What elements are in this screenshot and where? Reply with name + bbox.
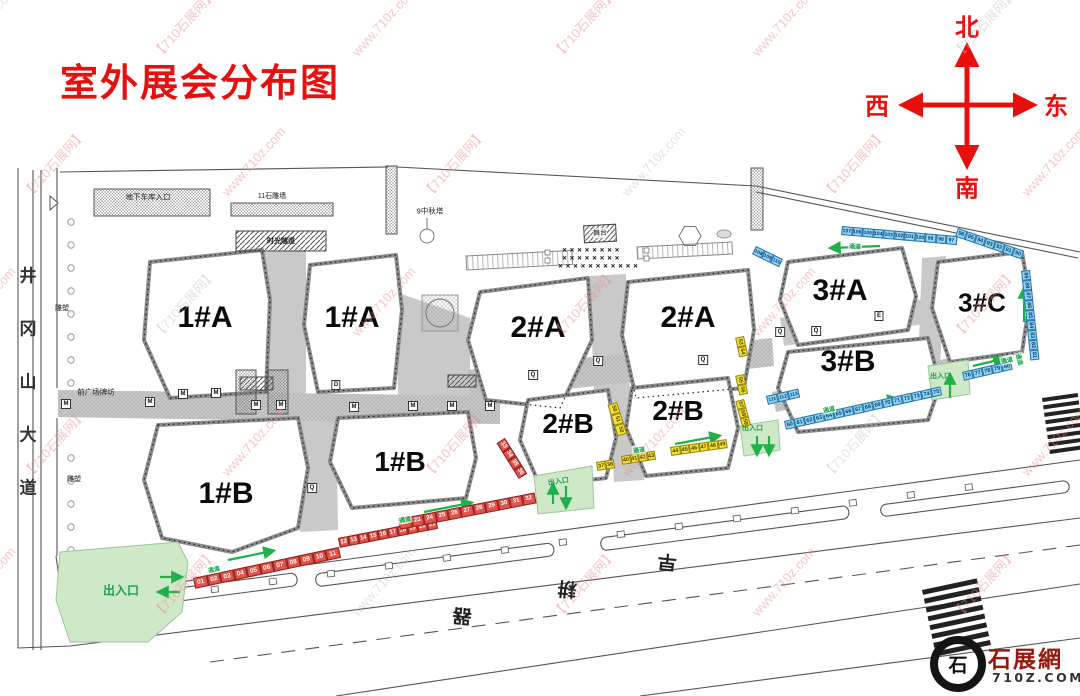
passage-label: 通道 [631,444,646,455]
building-label-b3a: 3#A [812,274,867,308]
walkway-marker-m: M [251,400,261,410]
logo-site-name: 石展網 [988,640,1063,674]
seat-mark: ✕ [570,247,575,254]
compass-cross [908,52,1028,160]
seat-mark: ✕ [615,247,620,254]
light-post [68,288,74,294]
seat-mark: ✕ [577,247,582,254]
parking-tick [675,523,683,530]
time-tunnel-label: 时光隧道 [267,236,295,246]
parking-tick [559,539,567,546]
plaza-square [422,295,458,331]
seat-mark: ✕ [585,247,590,254]
avenue-char: 道 [20,474,37,499]
building-label-b2b_w: 2#B [542,408,593,440]
stage-label: 舞台 [593,228,608,239]
light-post [68,219,74,225]
garage-entrance-label: 地下车库入口 [126,192,171,203]
zebra-stripe [1049,445,1080,454]
building-label-b2a_w: 2#A [510,311,565,345]
booth-43: 43 [646,451,656,461]
seat-mark: ✕ [611,263,616,270]
walkway-marker-q: Q [307,483,317,493]
light-post [68,380,74,386]
seat-mark: ✕ [600,255,605,262]
parking-tick [849,499,857,506]
seat-table [644,256,649,261]
avenue-char: 山 [20,368,37,393]
page-title: 室外展会分布图 [60,52,340,107]
parking-tick [269,578,277,585]
seat-mark: ✕ [581,263,586,270]
seat-mark: ✕ [592,255,597,262]
stone-wall-label: 11石雕墙 [258,191,286,201]
walkway-marker-q: Q [811,326,821,336]
tower-east [751,168,763,230]
parking-tick [733,515,741,522]
autumn-tower-marker [420,229,434,243]
seat-table [644,248,649,253]
avenue-char: 大 [20,421,37,446]
compass-north-label: 北 [955,8,979,43]
parking-tick [617,531,625,538]
seat-mark: ✕ [633,263,638,270]
sculpture-south-label: 雕塑 [67,474,81,484]
booth-97: 97 [946,235,957,245]
pergola-east [637,242,732,259]
parking-tick [211,586,219,593]
autumn-tower-label: 9中秋塔 [417,206,444,217]
seat-mark: ✕ [607,247,612,254]
road-name-char: 器 [451,603,473,632]
sculpture-north-label: 雕塑 [55,303,69,313]
walkway-marker-m: M [349,402,359,412]
walkway-marker-e: E [874,311,883,321]
walkway-marker-d: D [331,380,340,390]
compass-south-label: 南 [955,169,979,204]
zebra-stripe [1046,423,1080,432]
seat-mark: ✕ [592,247,597,254]
seat-mark: ✕ [558,263,563,270]
parking-tick [385,562,393,569]
seat-table [545,250,550,255]
seat-mark: ✕ [566,263,571,270]
zebra-stripe [1045,415,1080,424]
light-post [68,242,74,248]
light-post [68,524,74,530]
seat-mark: ✕ [615,255,620,262]
light-post [68,265,74,271]
road-name-char: 早 [656,549,678,578]
parking-tick [965,484,973,491]
road-name-char: 耕 [556,576,578,605]
walkway-marker-q: Q [775,327,785,337]
parking-tick [443,554,451,561]
zebra-stripe [1044,408,1080,417]
compass-east-label: 东 [1044,87,1068,122]
walkway-marker-m: M [408,401,418,411]
planter-ellipse [717,230,731,238]
seat-mark: ✕ [585,255,590,262]
parking-tick [501,547,509,554]
building-label-b1a_e: 1#A [324,301,379,335]
parking-tick [791,507,799,514]
light-post [68,501,74,507]
pergola-west [466,250,573,270]
pavilion-hexagon [679,227,701,246]
booth-49: 49 [717,439,728,449]
compass-west-label: 西 [865,87,889,122]
seat-mark: ✕ [577,255,582,262]
seat-mark: ✕ [588,263,593,270]
seat-mark: ✕ [600,247,605,254]
building-label-b3b: 3#B [820,345,875,379]
light-post [68,334,74,340]
zebra-stripe [1047,430,1080,439]
front-archway-label: 前广场牌坊 [77,387,115,398]
booth-56: 56 [737,384,748,396]
walkway-marker-m: M [178,389,188,399]
seat-mark: ✕ [607,255,612,262]
seat-mark: ✕ [573,263,578,270]
entrance-exit-label-main: 出入口 [103,582,139,599]
avenue-char: 冈 [20,315,37,340]
booth-54: 54 [737,346,748,358]
passage-label: 通道 [848,241,863,251]
seat-mark: ✕ [562,255,567,262]
walkway-marker-m: M [145,397,155,407]
building-label-b2b_e: 2#B [652,395,703,427]
walkway-marker-m: M [61,399,71,409]
light-posts [68,219,74,553]
light-post [68,357,74,363]
building-label-b1a_w: 1#A [177,301,232,335]
building-label-b3c: 3#C [958,288,1006,319]
parking-tick [907,492,915,499]
logo-site-domain: 710Z.COM [992,670,1080,685]
walkway-marker-q: Q [528,370,538,380]
entrance-exit-label: 出入口 [930,371,951,381]
building-label-b1b_w: 1#B [198,477,253,511]
zebra-stripe [1043,400,1079,409]
seat-table [545,258,550,263]
seat-mark: ✕ [596,263,601,270]
building-label-b1b_e: 1#B [374,446,425,478]
walkway-marker-m: M [211,388,221,398]
building-label-b2a_e: 2#A [660,301,715,335]
entrance-exit-label: 出入口 [742,423,763,433]
booth-81: 81 [1029,350,1039,361]
stone-carving-wall [231,203,333,216]
walkway-marker-q: Q [593,356,603,366]
avenue-char: 井 [20,262,37,287]
tower-west [386,166,397,234]
zebra-stripe [1042,393,1078,402]
escalator-east [448,375,476,387]
walkway-marker-m: M [485,401,495,411]
seat-mark: ✕ [570,255,575,262]
seat-mark: ✕ [562,247,567,254]
light-post [68,455,74,461]
walkway-marker-m: M [447,401,457,411]
seat-mark: ✕ [603,263,608,270]
seat-mark: ✕ [626,263,631,270]
seat-mark: ✕ [618,263,623,270]
parking-tick [327,570,335,577]
zebra-stripe [1048,438,1080,447]
logo-seal-glyph: 石 [948,651,967,678]
booth-38: 38 [605,459,615,469]
zebra-crossings [922,393,1080,657]
site-map: ✕✕✕✕✕✕✕✕✕✕✕✕✕✕✕✕✕✕✕✕✕✕✕✕✕✕✕ [0,0,1080,696]
walkway-marker-m: M [276,400,286,410]
walkway-marker-q: Q [698,355,708,365]
